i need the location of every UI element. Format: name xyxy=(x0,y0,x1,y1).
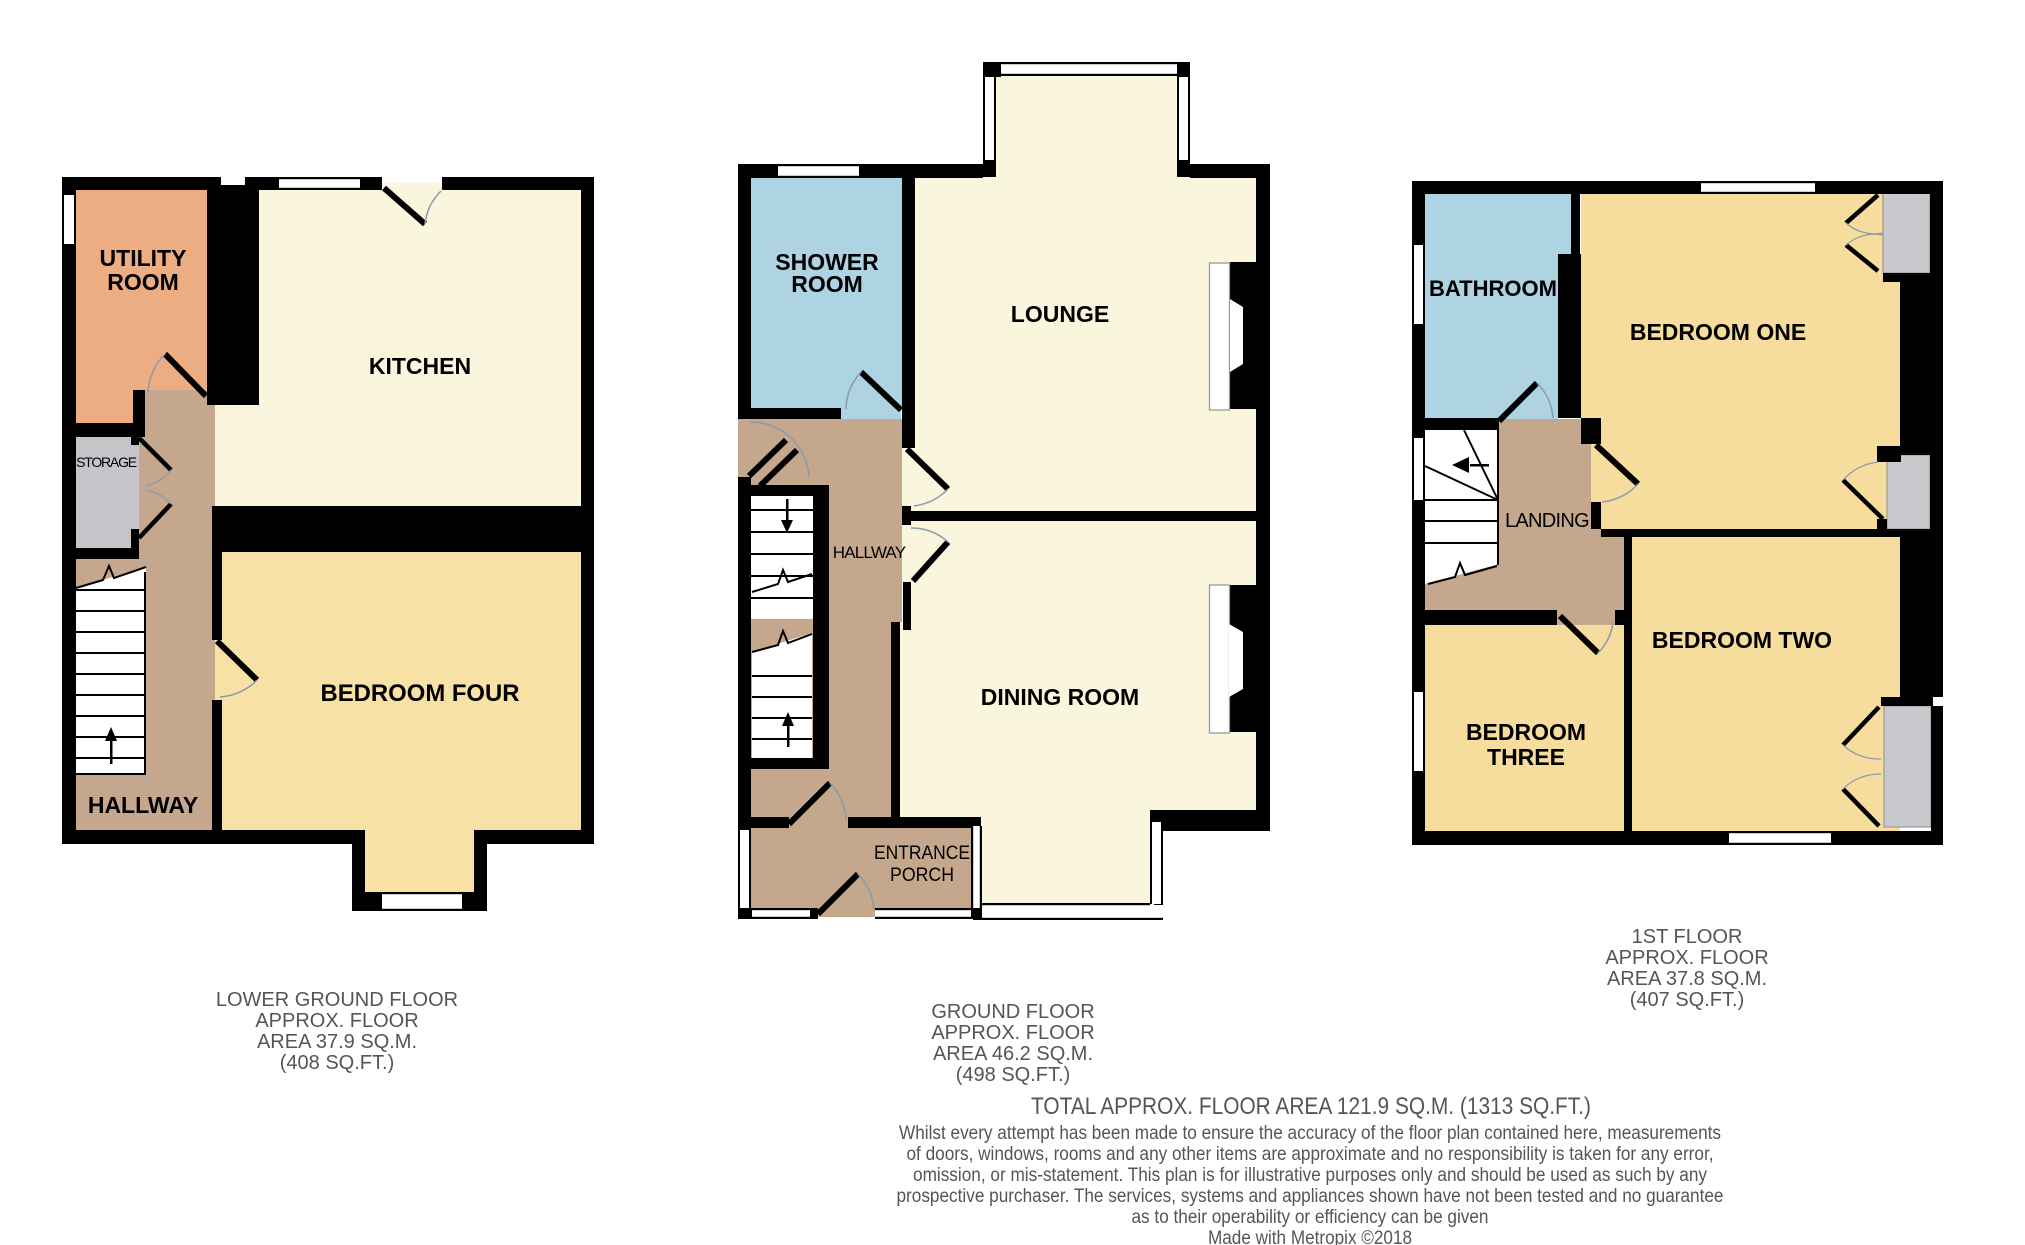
svg-text:(408 SQ.FT.): (408 SQ.FT.) xyxy=(280,1052,394,1074)
svg-text:AREA 37.9 SQ.M.: AREA 37.9 SQ.M. xyxy=(257,1031,417,1053)
svg-text:KITCHEN: KITCHEN xyxy=(369,353,471,379)
svg-text:PORCH: PORCH xyxy=(890,865,954,886)
svg-text:LOUNGE: LOUNGE xyxy=(1011,301,1109,327)
svg-text:HALLWAY: HALLWAY xyxy=(88,792,198,818)
svg-text:BEDROOM TWO: BEDROOM TWO xyxy=(1652,627,1832,653)
svg-text:AREA 37.8 SQ.M.: AREA 37.8 SQ.M. xyxy=(1607,968,1767,990)
svg-text:APPROX. FLOOR: APPROX. FLOOR xyxy=(1605,947,1768,969)
svg-text:AREA 46.2 SQ.M.: AREA 46.2 SQ.M. xyxy=(933,1043,1093,1065)
svg-text:as to their operability or eff: as to their operability or efficiency ca… xyxy=(1132,1207,1489,1228)
svg-text:APPROX. FLOOR: APPROX. FLOOR xyxy=(255,1010,418,1032)
svg-text:ROOM: ROOM xyxy=(107,269,179,295)
svg-text:ENTRANCE: ENTRANCE xyxy=(874,843,970,864)
svg-text:prospective purchaser. The ser: prospective purchaser. The services, sys… xyxy=(897,1186,1724,1207)
svg-text:BEDROOM ONE: BEDROOM ONE xyxy=(1630,319,1806,345)
svg-text:of doors, windows, rooms and a: of doors, windows, rooms and any other i… xyxy=(907,1144,1714,1165)
svg-text:BEDROOM FOUR: BEDROOM FOUR xyxy=(321,680,520,707)
svg-text:THREE: THREE xyxy=(1487,744,1565,770)
svg-text:HALLWAY: HALLWAY xyxy=(833,543,906,562)
svg-text:omission, or mis-statement. Th: omission, or mis-statement. This plan is… xyxy=(913,1165,1707,1186)
svg-text:(407 SQ.FT.): (407 SQ.FT.) xyxy=(1630,989,1744,1011)
svg-text:Whilst every attempt has been: Whilst every attempt has been made to en… xyxy=(899,1123,1721,1144)
svg-text:1ST FLOOR: 1ST FLOOR xyxy=(1632,926,1743,948)
svg-text:TOTAL APPROX. FLOOR AREA 121.9: TOTAL APPROX. FLOOR AREA 121.9 SQ.M. (13… xyxy=(1031,1093,1591,1120)
svg-text:LOWER GROUND FLOOR: LOWER GROUND FLOOR xyxy=(216,989,458,1011)
svg-text:Made with Metropix ©2018: Made with Metropix ©2018 xyxy=(1208,1228,1412,1245)
svg-text:BEDROOM: BEDROOM xyxy=(1466,719,1586,745)
svg-text:UTILITY: UTILITY xyxy=(100,245,187,271)
svg-text:(498 SQ.FT.): (498 SQ.FT.) xyxy=(956,1064,1070,1086)
svg-text:GROUND FLOOR: GROUND FLOOR xyxy=(931,1001,1094,1023)
svg-text:STORAGE: STORAGE xyxy=(76,454,137,470)
svg-text:LANDING: LANDING xyxy=(1505,510,1589,532)
svg-text:BATHROOM: BATHROOM xyxy=(1429,276,1557,301)
svg-text:DINING ROOM: DINING ROOM xyxy=(981,684,1139,710)
svg-text:ROOM: ROOM xyxy=(791,271,863,297)
svg-text:APPROX. FLOOR: APPROX. FLOOR xyxy=(931,1022,1094,1044)
